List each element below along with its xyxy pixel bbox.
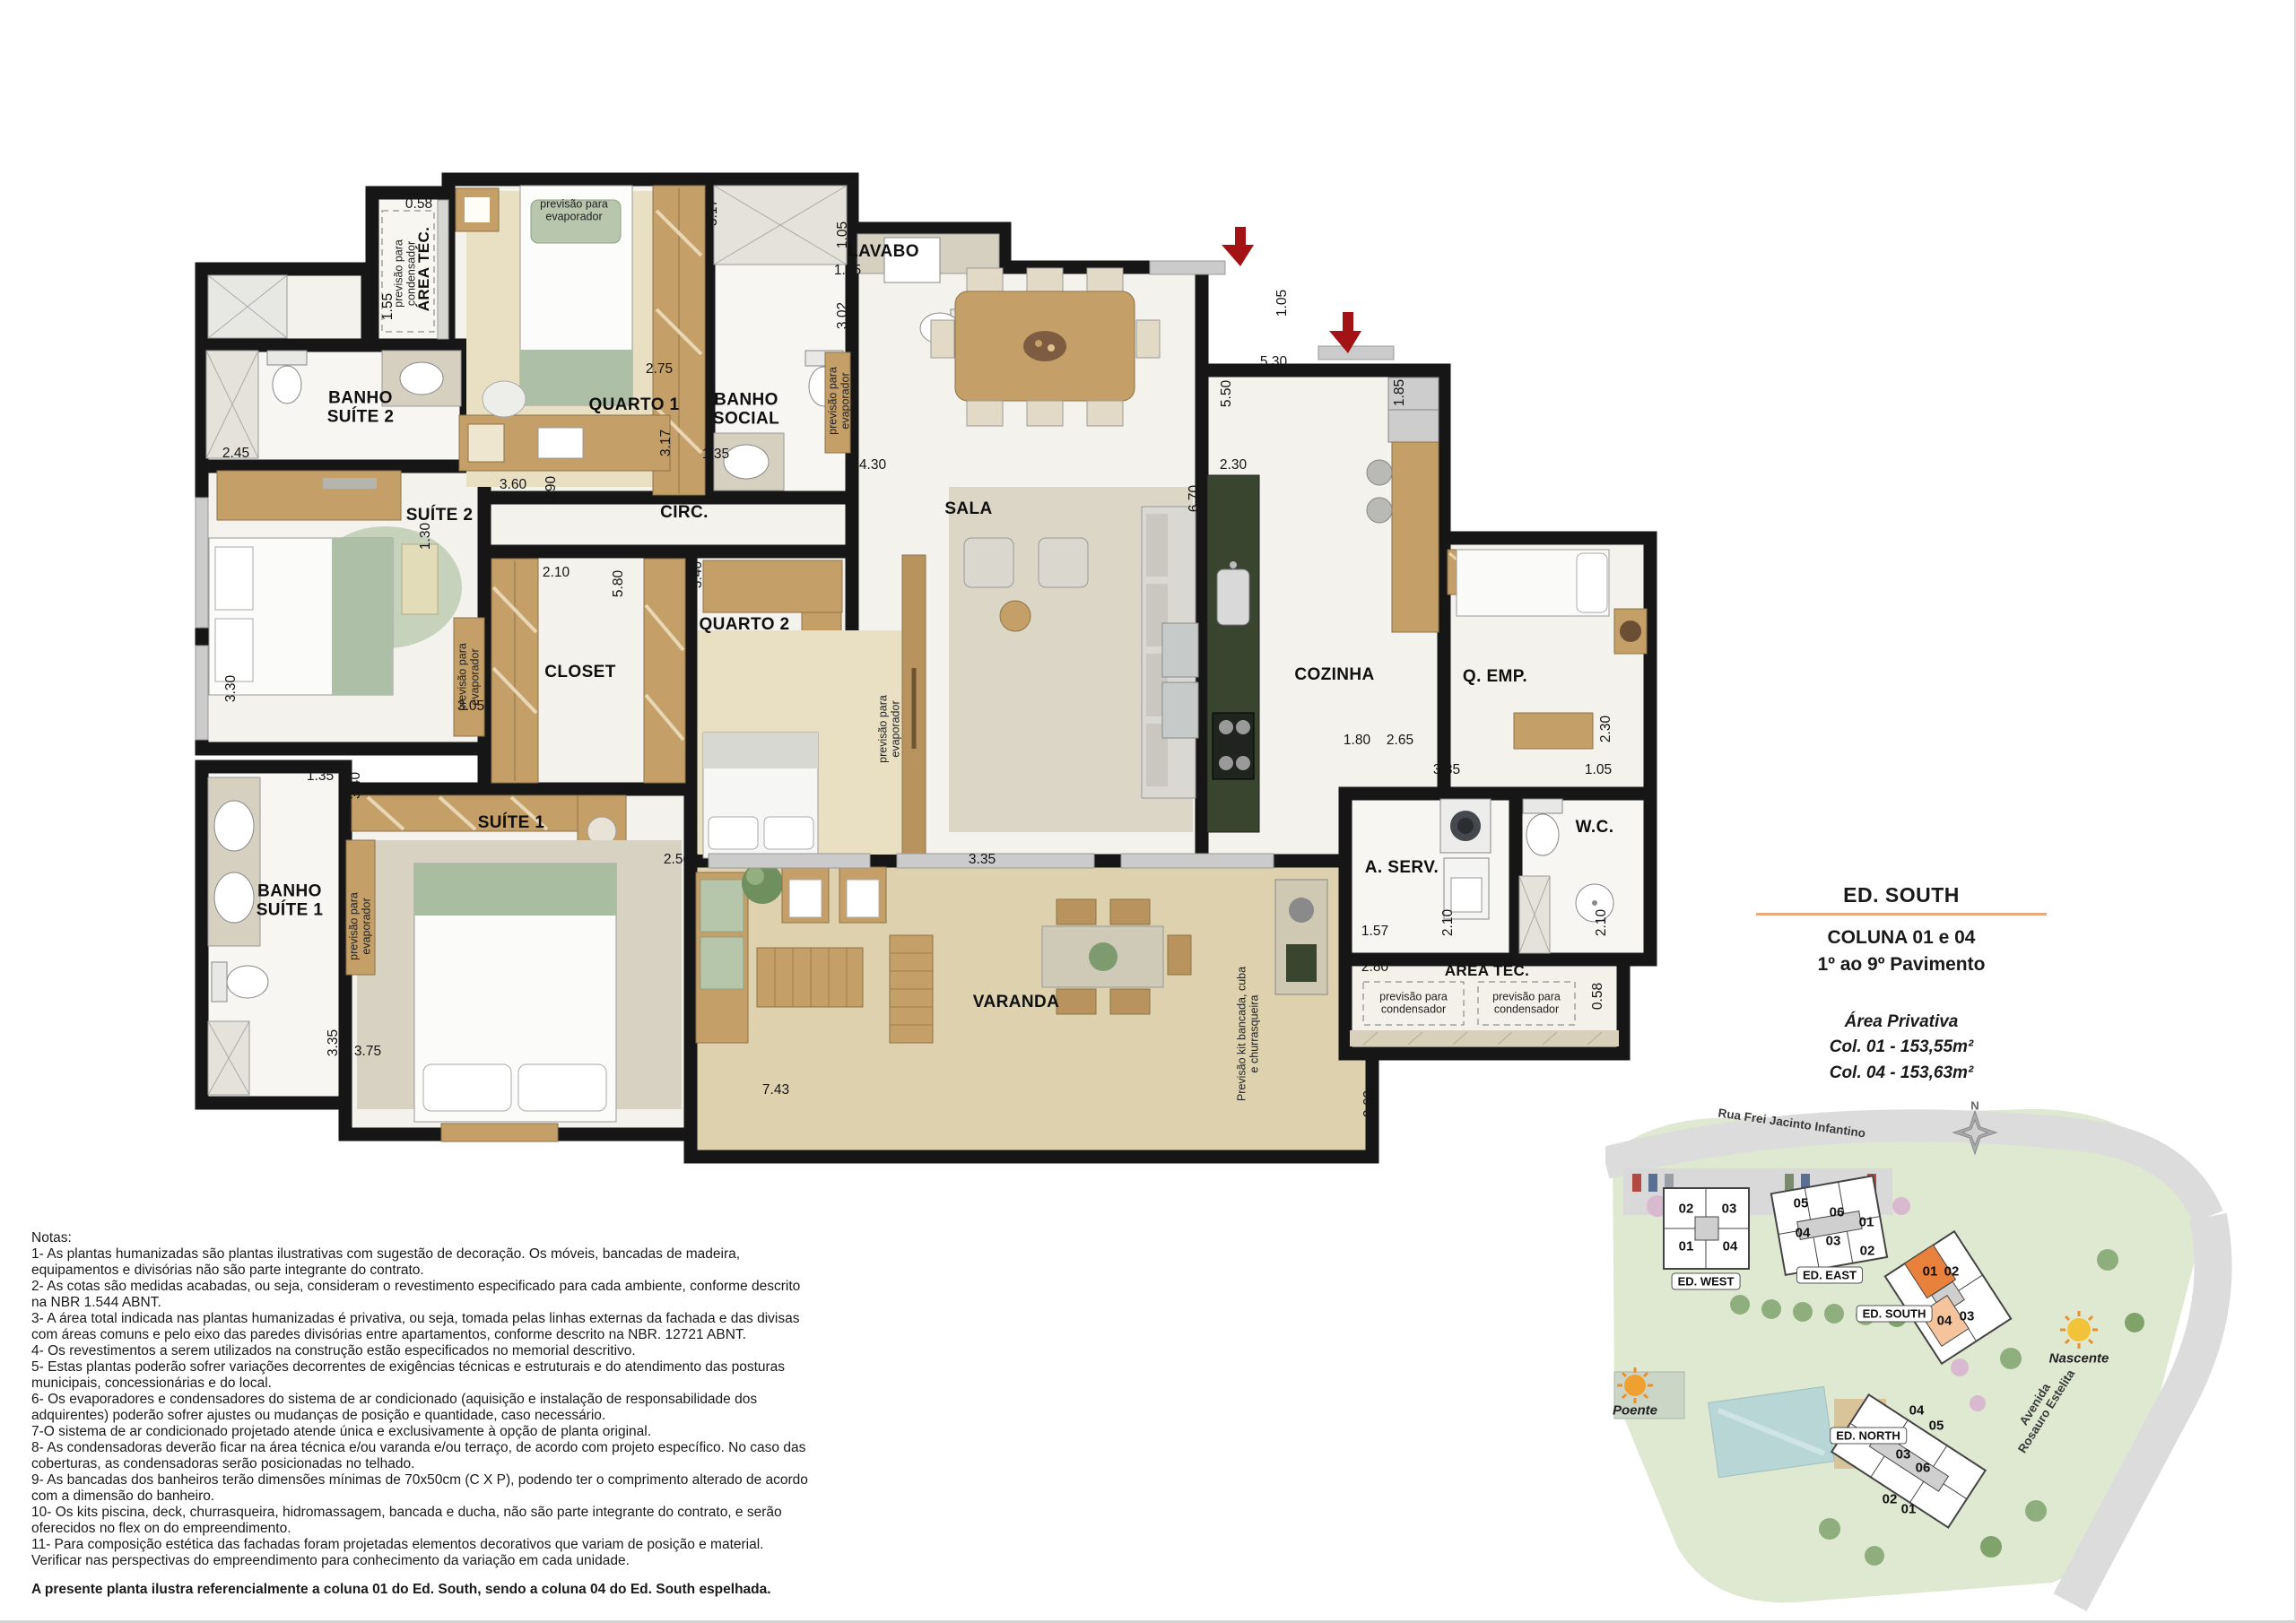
dim-label: 7.43 [762, 1082, 789, 1098]
unit-number: 02 [1679, 1202, 1694, 1217]
private-area-title: Área Privativa [1749, 1010, 2054, 1036]
dim-label: 1.57 [1361, 924, 1388, 940]
building-label-west: ED. WEST [1672, 1273, 1741, 1290]
building-title: ED. SOUTH [1749, 883, 2054, 907]
pool [1709, 1386, 1834, 1477]
dim-label: 1.05 [835, 221, 851, 248]
building-label-south: ED. SOUTH [1857, 1306, 1933, 1323]
unit-number: 04 [1723, 1239, 1738, 1254]
dim-label: 1.05 [1585, 762, 1612, 778]
annotation-condensador: previsão para condensador [1379, 991, 1448, 1017]
unit-number: 06 [1830, 1205, 1845, 1220]
room-label-quarto2: QUARTO 2 [699, 615, 789, 635]
room-label-qemp: Q. EMP. [1463, 667, 1527, 687]
dim-label: 1.35 [307, 768, 334, 785]
floor-info: 1º ao 9º Pavimento [1749, 951, 2054, 978]
room-label-circ: CIRC. [660, 503, 709, 523]
unit-number: 02 [1883, 1492, 1898, 1507]
dim-label: 2.75 [646, 361, 673, 378]
dim-label: 2.65 [1387, 733, 1413, 749]
unit-number: 05 [1929, 1419, 1944, 1434]
private-area-col04: Col. 04 - 153,63m² [1749, 1061, 2054, 1087]
room-label-varanda: VARANDA [973, 993, 1059, 1012]
notes-footer: A presente planta ilustra referencialmen… [31, 1582, 1108, 1598]
unit-number: 01 [1679, 1239, 1694, 1254]
dim-label: 0.90 [544, 476, 560, 503]
building-label-east: ED. EAST [1796, 1267, 1863, 1284]
room-label-cozinha: COZINHA [1294, 665, 1374, 685]
unit-number: 03 [1722, 1202, 1737, 1217]
dim-label: 2.63 [1361, 1090, 1378, 1117]
sun-label-poente: Poente [1613, 1403, 1657, 1419]
dim-label: 1.55 [834, 263, 861, 279]
unit-number: 03 [1826, 1234, 1841, 1249]
unit-number: 03 [1896, 1447, 1911, 1462]
room-label-quarto1: QUARTO 1 [588, 395, 679, 415]
unit-number: 01 [1859, 1215, 1874, 1230]
dim-label: 0.58 [405, 196, 432, 213]
dim-label: 2.30 [1220, 457, 1247, 473]
dim-label: 4.30 [859, 457, 886, 473]
annotation-evaporador: previsão para evaporador [348, 892, 374, 960]
room-label-banho-suite1: BANHO SUÍTE 1 [257, 882, 324, 921]
dim-label: 6.70 [1187, 485, 1203, 512]
furniture-suite1 [346, 795, 682, 1141]
dim-label: 1.80 [1344, 733, 1370, 749]
unit-number: 06 [1916, 1461, 1931, 1476]
dim-label: 5.80 [611, 570, 627, 597]
annotation-evaporador: previsão para evaporador [457, 643, 483, 711]
annotation-condensador: previsão para condensador [1492, 991, 1561, 1017]
dim-label: 3.60 [500, 477, 526, 493]
unit-number: 05 [1794, 1196, 1809, 1211]
dim-label: 0.58 [1590, 983, 1606, 1010]
dim-label: 2.30 [1598, 716, 1614, 742]
annotation-condensador: previsão para condensador [393, 239, 419, 308]
dim-label: 3.40 [690, 561, 706, 588]
dim-label: 3.35 [969, 852, 996, 868]
dim-label: 1.35 [702, 447, 729, 463]
dim-label: 1.05 [1274, 290, 1291, 317]
notes-block: Notas: 1- As plantas humanizadas são pla… [31, 1230, 1108, 1598]
unit-number: 01 [1901, 1502, 1917, 1517]
unit-number: 04 [1937, 1314, 1952, 1329]
unit-number: 03 [1960, 1309, 1975, 1324]
dim-label: 3.17 [658, 430, 674, 456]
room-label-lavabo: LAVABO [848, 242, 919, 262]
building-ed-west [1664, 1188, 1749, 1269]
dim-label: 3.35 [1433, 762, 1460, 778]
unit-number: 02 [1944, 1264, 1960, 1280]
private-area-col01: Col. 01 - 153,55m² [1749, 1035, 2054, 1061]
dim-label: 3.35 [326, 1029, 342, 1056]
room-label-aserv: A. SERV. [1365, 858, 1439, 878]
dim-label: 5.30 [1260, 354, 1287, 370]
dim-label: 2.50 [664, 852, 691, 868]
room-label-suite1: SUÍTE 1 [478, 813, 545, 833]
dim-label: 3.30 [223, 675, 239, 702]
sun-poente-icon [1617, 1367, 1653, 1403]
site-map: Rua Frei Jacinto Infantino Avenida Rosau… [1605, 1098, 2296, 1619]
room-label-wc: W.C. [1576, 818, 1614, 838]
sun-label-nascente: Nascente [2049, 1351, 2109, 1367]
dim-label: 2.10 [1594, 909, 1610, 936]
floor-plan-drawing [117, 85, 1722, 1193]
unit-number: 04 [1909, 1403, 1925, 1419]
dim-label: 3.17 [705, 199, 721, 226]
room-label-banho-suite2: BANHO SUÍTE 2 [327, 389, 395, 428]
unit-number: 02 [1860, 1244, 1875, 1259]
building-label-north: ED. NORTH [1830, 1428, 1907, 1445]
annotation-kit-varanda: Previsão kit bancada, cuba e churrasquei… [1236, 967, 1262, 1101]
dim-label: 3.40 [348, 772, 364, 799]
column-info: COLUNA 01 e 04 [1749, 924, 2054, 951]
dim-label: 3.75 [354, 1044, 381, 1060]
unit-number: 01 [1923, 1264, 1938, 1280]
dim-label: 3.02 [835, 302, 851, 329]
site-map-drawing [1605, 1098, 2296, 1619]
room-label-suite2: SUÍTE 2 [406, 506, 474, 525]
dim-label: 5.50 [1219, 380, 1235, 407]
floor-plan: ÁREA TÉC. QUARTO 1 BANHO SOCIAL LAVABO B… [117, 85, 1722, 1193]
dim-label: 2.80 [1361, 959, 1388, 976]
room-label-banho-social: BANHO SOCIAL [713, 391, 779, 430]
room-label-closet: CLOSET [544, 663, 615, 682]
room-label-sala: SALA [944, 499, 992, 519]
dim-label: 1.30 [418, 523, 434, 550]
room-label-area-tec-br: ÁREA TÉC. [1445, 962, 1530, 980]
compass-n-label: N [1970, 1099, 1979, 1113]
title-block: ED. SOUTH COLUNA 01 e 04 1º ao 9º Pavime… [1749, 883, 2054, 1086]
title-underline [1756, 913, 2047, 916]
entry-arrow-icon [1222, 227, 1361, 353]
dim-label: 1.85 [1392, 379, 1408, 406]
annotation-evaporador: previsão para evaporador [877, 695, 903, 763]
dim-label: 2.10 [543, 565, 570, 581]
annotation-evaporador: previsão para evaporador [540, 198, 608, 224]
notes-body: 1- As plantas humanizadas são plantas il… [31, 1246, 1108, 1569]
notes-title: Notas: [31, 1230, 1108, 1246]
dim-label: 2.10 [1440, 909, 1457, 936]
annotation-evaporador: previsão para evaporador [827, 367, 853, 435]
unit-number: 04 [1796, 1226, 1811, 1241]
dim-label: 2.45 [222, 446, 249, 462]
